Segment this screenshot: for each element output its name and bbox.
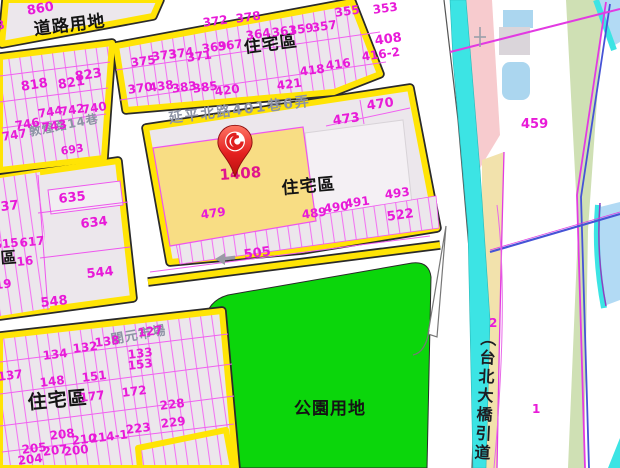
map-base-layer xyxy=(0,0,620,468)
block-818 xyxy=(0,43,112,170)
location-pin-icon[interactable] xyxy=(216,122,254,178)
park-area xyxy=(205,263,431,468)
canal-corner xyxy=(608,438,620,468)
cadastral-map-canvas[interactable]: 道路用地 住宅區 住宅區 宅區 住宅區 公園用地 敦煌路14巷 延平北路401巷… xyxy=(0,0,620,468)
bridge-corridor xyxy=(444,0,620,468)
